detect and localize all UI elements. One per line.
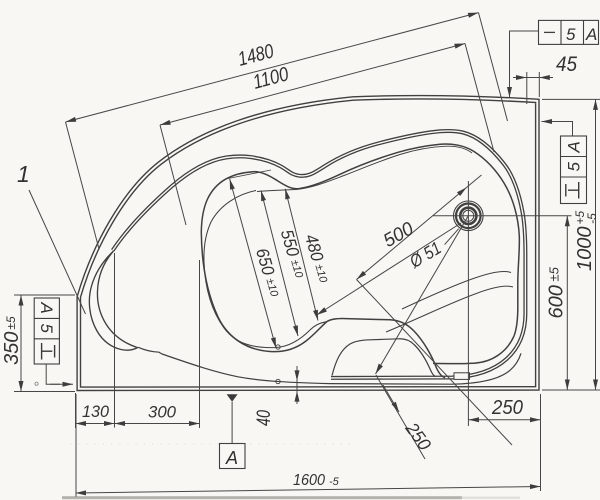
svg-text:-5: -5 <box>329 476 340 488</box>
svg-text:1: 1 <box>17 161 30 187</box>
svg-text:130: 130 <box>82 402 110 421</box>
svg-text:1600: 1600 <box>293 472 325 489</box>
svg-text:5: 5 <box>565 162 584 172</box>
svg-text:A: A <box>225 448 238 468</box>
svg-text:A: A <box>585 25 597 44</box>
svg-text:5: 5 <box>37 324 56 334</box>
svg-text:40: 40 <box>254 410 275 426</box>
svg-text:250: 250 <box>491 397 523 419</box>
svg-text:45: 45 <box>556 53 577 76</box>
svg-text:300: 300 <box>148 403 177 422</box>
svg-text:5: 5 <box>566 25 576 44</box>
svg-text:A: A <box>565 141 584 153</box>
svg-text:A: A <box>37 302 56 314</box>
svg-text:1000+5-5: 1000+5-5 <box>573 210 599 271</box>
